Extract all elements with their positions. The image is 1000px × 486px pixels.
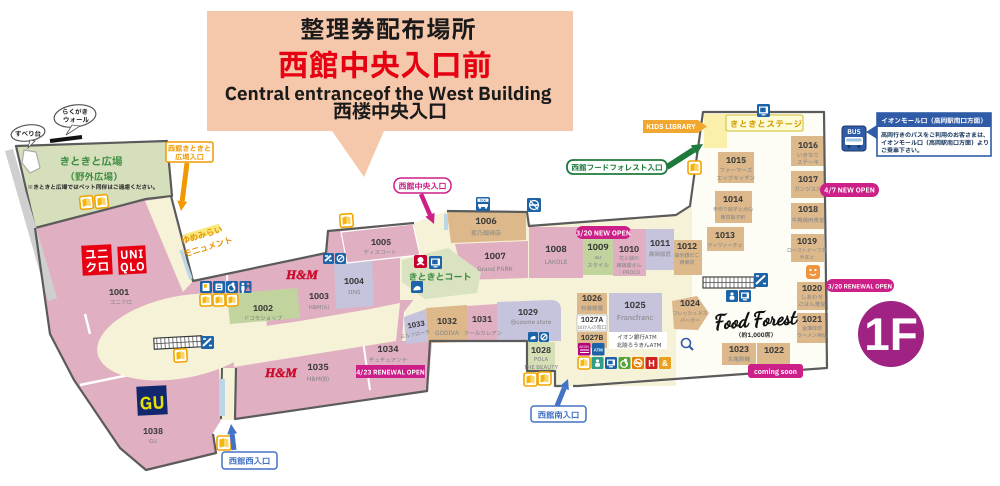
svg-text:&: &	[662, 358, 668, 368]
svg-text:AEON: AEON	[579, 345, 589, 349]
svg-text:TAXI: TAXI	[480, 198, 487, 202]
svg-text:ATM: ATM	[594, 347, 604, 352]
svg-text:H: H	[648, 359, 655, 369]
